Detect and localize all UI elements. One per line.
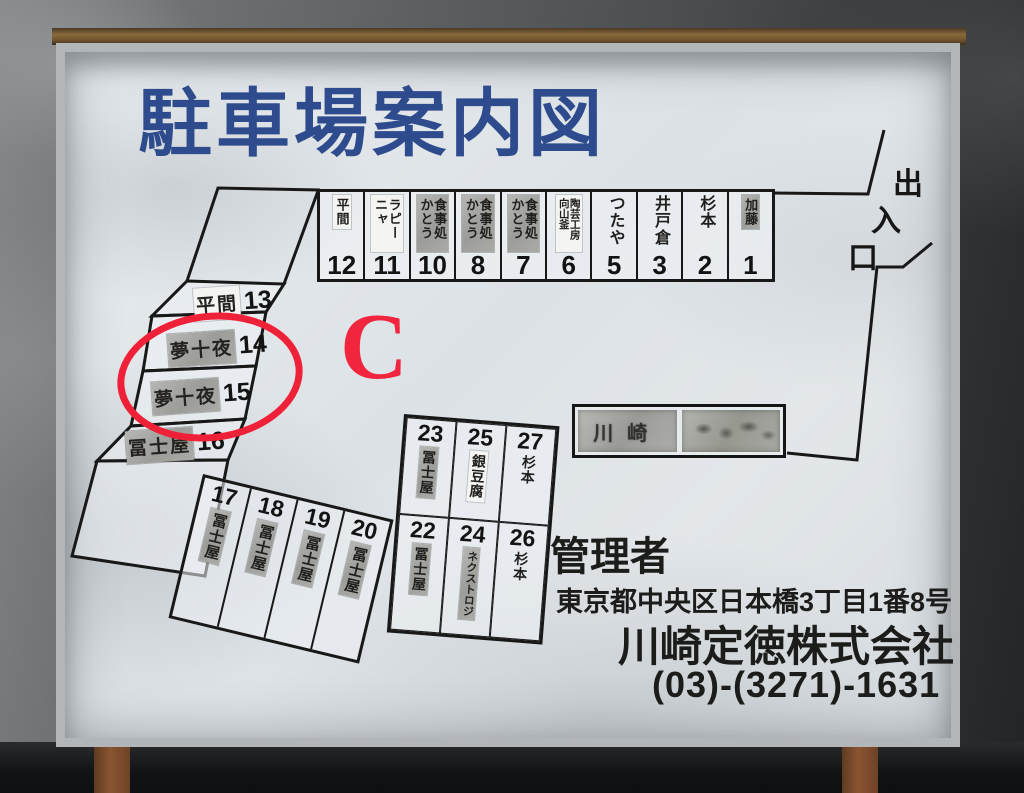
spot-number: 3 — [652, 252, 666, 278]
center-block-spots: 23冨士屋25銀豆腐27杉本22冨士屋24ネクストロジ26杉本 — [387, 414, 560, 645]
spot-22: 22冨士屋 — [390, 514, 449, 634]
spot-name: 陶芸工房向山釜 — [556, 195, 582, 252]
red-letter-annotation: C — [340, 300, 408, 394]
spot-number: 13 — [243, 285, 273, 316]
spot-1: 加藤1 — [727, 192, 772, 279]
spot-5: つたや5 — [590, 192, 635, 279]
spot-name: 井戸倉 — [651, 195, 668, 246]
spot-23: 23冨士屋 — [399, 417, 456, 518]
spot-number: 10 — [418, 252, 447, 278]
spot-number: 19 — [303, 504, 333, 532]
boundary-top-left — [187, 188, 320, 281]
spot-number: 20 — [349, 516, 379, 544]
spot-number: 7 — [516, 252, 530, 278]
spot-name: ネクストロジ — [458, 547, 479, 620]
spot-number: 17 — [209, 482, 239, 510]
spot-name: 銀豆腐 — [466, 450, 489, 502]
spot-7: 食事処かとう7 — [500, 192, 545, 279]
entrance-char: 入 — [871, 207, 901, 237]
spot-6: 陶芸工房向山釜6 — [545, 192, 590, 279]
manager-heading: 管理者 — [550, 524, 670, 582]
spot-10: 食事処かとう10 — [409, 192, 454, 279]
spot-number: 26 — [509, 526, 536, 551]
spot-name: 食事処かとう — [508, 195, 539, 252]
spot-name: 冨士屋 — [246, 519, 278, 576]
spot-name: 冨士屋 — [409, 543, 432, 595]
spot-3: 井戸倉3 — [636, 192, 681, 279]
boundary-entrance-top — [772, 130, 884, 194]
spot-number: 6 — [562, 252, 576, 278]
spot-25: 25銀豆腐 — [449, 421, 506, 522]
spot-number: 2 — [698, 252, 712, 278]
boundary-trapezoid-right — [284, 191, 318, 284]
entrance-char: 出 — [893, 170, 923, 200]
spot-12: 平間12 — [320, 192, 363, 279]
spot-26: 26杉本 — [490, 522, 549, 642]
boundary-entrance-bottom — [787, 243, 932, 460]
spot-number: 8 — [471, 252, 485, 278]
spot-number: 22 — [409, 518, 436, 543]
spot-2: 杉本2 — [681, 192, 726, 279]
spot-27: 27杉本 — [499, 425, 556, 526]
spot-name: 冨士屋 — [339, 542, 371, 599]
spot-number: 18 — [256, 493, 286, 521]
kawasaki-plate-left: 川崎 — [578, 410, 677, 452]
spot-11: ラピーニャ11 — [363, 192, 408, 279]
spot-name: 冨士屋 — [199, 508, 231, 565]
spot-name: 冨士屋 — [416, 446, 439, 498]
kawasaki-plate-text: 川崎 — [593, 417, 661, 446]
spot-24: 24ネクストロジ — [440, 518, 499, 638]
top-row-spots: 平間12ラピーニャ11食事処かとう10食事処かとう8食事処かとう7陶芸工房向山釜… — [317, 189, 775, 282]
spot-name: つたや — [606, 195, 623, 246]
spot-name: 平間 — [333, 195, 351, 229]
spot-name: ラピーニャ — [371, 195, 402, 252]
manager-phone: (03)-(3271)-1631 — [652, 664, 940, 706]
spot-name: 食事処かとう — [462, 195, 493, 252]
spot-name: 食事処かとう — [417, 195, 448, 252]
spot-number: 11 — [373, 252, 401, 278]
spot-name: 冨士屋 — [292, 530, 324, 587]
spot-number: 23 — [417, 421, 444, 446]
spot-number: 12 — [327, 252, 356, 278]
spot-number: 1 — [743, 252, 757, 278]
spot-number: 27 — [517, 429, 544, 454]
spot-name: 杉本 — [697, 195, 714, 229]
spot-name: 加藤 — [742, 195, 760, 229]
kawasaki-plate-box: 川崎 — [572, 404, 786, 458]
spot-8: 食事処かとう8 — [454, 192, 499, 279]
spot-name: 杉本 — [519, 454, 536, 485]
spot-number: 5 — [607, 252, 621, 278]
spot-name: 杉本 — [512, 551, 529, 582]
spot-number: 24 — [459, 522, 486, 547]
spot-number: 25 — [467, 425, 494, 450]
kawasaki-plate-right-illegible — [682, 410, 781, 452]
entrance-char: 口 — [848, 244, 878, 274]
